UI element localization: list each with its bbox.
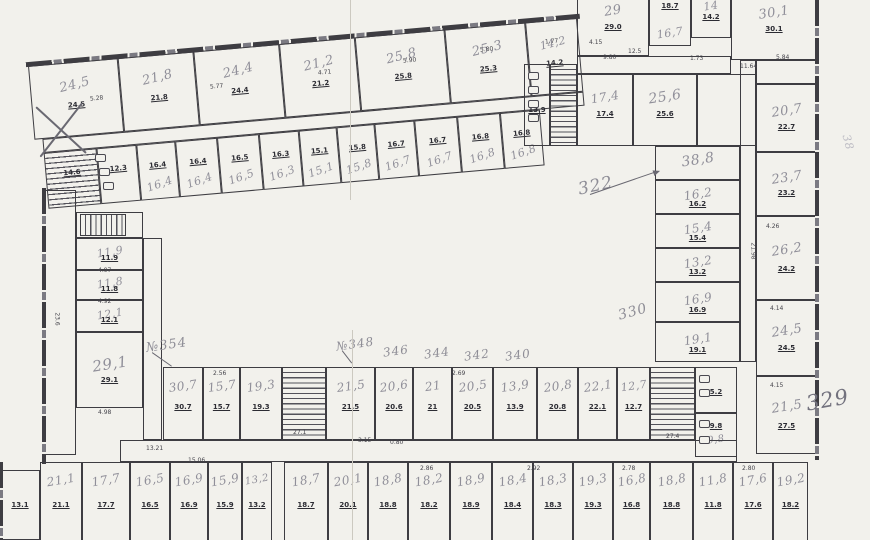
room: 13.1 [0, 470, 40, 540]
room-29.1: 29,129.1 [76, 332, 143, 408]
room-area-handwritten: 30,7 [168, 378, 198, 396]
room-11.8: 11,811.8 [76, 270, 143, 300]
dimension-number: 15.06 [188, 458, 205, 464]
room-area-printed: 17.4 [596, 110, 613, 118]
room-area-handwritten: 25,6 [647, 87, 682, 108]
room-21.2: 21,221.2 [279, 37, 361, 117]
dimension-number: 5.77 [210, 83, 224, 90]
room [756, 60, 817, 84]
room-area-printed: 11.8 [704, 501, 721, 509]
dimension-number: 2.80 [742, 466, 755, 472]
room-30.7: 30,730.7 [163, 367, 203, 440]
dimension-number: 4.98 [98, 410, 111, 416]
dimension-number: 2.56 [213, 371, 226, 377]
pencil-note-38: 38 [840, 133, 857, 152]
room-22.1: 22,122.1 [578, 367, 617, 440]
room-16.7: 16,716.7 [374, 121, 419, 180]
room-area-printed: 12.1 [101, 316, 118, 324]
room-area-handwritten: 16,5 [227, 166, 256, 187]
room-area-handwritten: 16,9 [682, 290, 713, 308]
room-18.8: 18,818.8 [368, 462, 408, 540]
room-area-handwritten: 24,5 [58, 74, 92, 96]
room-area-printed: 20.8 [549, 403, 566, 411]
room-area-handwritten: 20,8 [542, 378, 572, 396]
room-13.9: 13,913.9 [493, 367, 537, 440]
room-20.5: 20,520.5 [452, 367, 493, 440]
room-19.1: 19,119.1 [655, 322, 740, 362]
room-area-printed: 24.4 [231, 86, 249, 95]
room-area-printed: 16.2 [689, 200, 706, 208]
dimension-number: 2.92 [527, 466, 540, 472]
room-21.8: 21,821.8 [118, 52, 200, 132]
room-30.1: 30,130.1 [731, 0, 817, 60]
room-18.4: 18,418.4 [492, 462, 533, 540]
room-16.9: 16,916.9 [655, 282, 740, 322]
room-area-printed: 25.3 [480, 64, 498, 73]
dimension-number: 9.80 [603, 55, 616, 61]
room-13.2: 13,213.2 [655, 248, 740, 282]
room-area-printed: 18.4 [504, 501, 521, 509]
room-area-handwritten: 29 [603, 3, 623, 21]
room-24.5: 24,524.5 [756, 300, 817, 376]
room-area-printed: 18.8 [663, 501, 680, 509]
dimension-number: 1.73 [690, 56, 703, 62]
room-16.5: 16,516.5 [130, 462, 170, 540]
room-area-printed: 13.2 [689, 268, 706, 276]
room-area-printed: 13.9 [506, 403, 523, 411]
room-area-printed: 18.2 [782, 501, 799, 509]
room-area-handwritten: 18,3 [538, 470, 569, 489]
room-area-printed: 12.3 [109, 163, 127, 172]
room-area-printed: 14.2 [702, 13, 719, 21]
dimension-number: 5.84 [776, 55, 789, 61]
room-area-printed: 21 [428, 403, 438, 411]
room-area-printed: 20.5 [464, 403, 481, 411]
room-20.6: 20,620.6 [375, 367, 413, 440]
room [120, 440, 737, 462]
room-area-printed: 15.9 [216, 501, 233, 509]
room-area-handwritten: 13,9 [500, 378, 530, 396]
dimension-number: 4.15 [770, 383, 783, 389]
room-16.3: 16,316.3 [259, 131, 304, 190]
room-area-handwritten: 21 [423, 378, 441, 394]
room-area-printed: 16.5 [231, 153, 249, 162]
room-area-handwritten: 29,1 [91, 352, 129, 375]
room-area-printed: 19.1 [689, 346, 706, 354]
room-area-handwritten: 12,7 [619, 378, 647, 395]
room-area-handwritten: 19,1 [682, 330, 713, 348]
room-area-handwritten: 18,8 [656, 470, 687, 489]
dimension-number: 5.80 [480, 46, 494, 53]
room-11.9: 11,911.9 [76, 238, 143, 270]
floor-plan-scan: 24,524.521,821.824,424.421,221.225,825.8… [0, 0, 870, 540]
room-area-handwritten: 16,5 [135, 470, 166, 489]
room-area-printed: 17.7 [97, 501, 114, 509]
room-area-printed: 22.1 [589, 403, 606, 411]
room-16.4: 16,416.4 [136, 141, 180, 200]
dimension-number: 2.78 [622, 466, 635, 472]
dimension-number: 11.64 [740, 64, 757, 70]
room-16.5: 16,516.5 [217, 134, 264, 193]
wc-fixture-icon [528, 100, 539, 108]
room-area-printed: 15.7 [213, 403, 230, 411]
room-area-handwritten: 24,5 [770, 321, 803, 341]
room-17.7: 17,717.7 [82, 462, 130, 540]
room-area-printed: 21.1 [52, 501, 69, 509]
room-area-printed: 18.7 [661, 2, 678, 10]
room-14: 1414.2 [691, 0, 731, 38]
room-area-printed: 20.1 [339, 501, 356, 509]
room-area-printed: 16.9 [689, 306, 706, 314]
room-area-handwritten: 21,1 [46, 470, 77, 489]
room-area-handwritten: 16,7 [425, 149, 454, 170]
room-area-handwritten: 16,8 [616, 470, 647, 489]
room-area-printed: 22.7 [778, 123, 795, 131]
room-area-printed: 15.8 [348, 142, 366, 151]
room-18.9: 18,918.9 [450, 462, 492, 540]
room-area-printed: 18.8 [379, 501, 396, 509]
room-area-printed: 24.2 [778, 265, 795, 273]
room-area-printed: 21.8 [150, 93, 168, 102]
pencil-note-330: 330 [616, 300, 649, 323]
room-12.7: 12,712.7 [617, 367, 650, 440]
room-area-printed: 16.3 [272, 149, 290, 158]
wc-fixture-icon [528, 72, 539, 80]
room-area-printed: 30.1 [765, 25, 782, 33]
room-area-handwritten: 16,7 [383, 153, 412, 174]
room-area-printed: 25.8 [394, 71, 412, 80]
room-area-printed: 16.4 [149, 160, 167, 169]
wc-fixture-icon [95, 154, 106, 162]
room-area-handwritten: 21,5 [770, 398, 803, 418]
room-area-printed: 18.7 [297, 501, 314, 509]
room-21.5: 21,521.5 [326, 367, 375, 440]
room-area-handwritten: 16,4 [145, 174, 174, 195]
room-25.8: 25,825.8 [355, 30, 451, 112]
outer-wall [42, 188, 46, 464]
room-13.2: 13,213.2 [242, 462, 272, 540]
room-area-printed: 16.4 [189, 156, 207, 165]
room-18.8: 18,818.8 [650, 462, 693, 540]
room-area-printed: 23.2 [778, 189, 795, 197]
room-area-printed: 18.9 [462, 501, 479, 509]
room-16.7: 16,718.7 [649, 0, 691, 46]
room-area-printed: 29.0 [604, 23, 621, 31]
dimension-number: 27.4 [666, 434, 679, 440]
room-area-printed: 18.3 [544, 501, 561, 509]
room-area-handwritten: 20,7 [770, 102, 803, 122]
room [740, 60, 756, 362]
room-16.4: 16,416.4 [175, 138, 222, 197]
room-area-handwritten: 15,8 [344, 156, 373, 177]
room-area-handwritten: 16,4 [185, 170, 214, 191]
room-area-handwritten: 19,3 [246, 378, 276, 396]
room-area-handwritten: 18,2 [414, 470, 445, 489]
room-18.7: 18,718.7 [284, 462, 328, 540]
room-18.3: 18,318.3 [533, 462, 573, 540]
room-area-printed: 24.5 [778, 344, 795, 352]
room-area-printed: 19.3 [584, 501, 601, 509]
room-16.8: 16,816.8 [613, 462, 650, 540]
room-area-printed: 16.7 [429, 135, 447, 144]
dimension-number: 4.14 [770, 306, 783, 312]
room-area-handwritten: 14 [703, 0, 720, 13]
room-17.4: 17,417.4 [577, 74, 633, 146]
room-15.7: 15,715.7 [203, 367, 240, 440]
room-area-printed: 29.1 [101, 376, 118, 384]
room-area-handwritten: 15,9 [210, 470, 241, 489]
room-area-printed: 14.6 [63, 167, 81, 176]
room-area-handwritten: 19,3 [578, 470, 609, 489]
dimension-number: 4.15 [589, 40, 602, 46]
room-area-printed: 15.1 [311, 146, 329, 155]
wc-fixture-icon [99, 168, 110, 176]
room-area-printed: 5.2 [710, 388, 722, 396]
room-16.7: 16,716.7 [414, 117, 462, 177]
room-area-printed: 21.2 [312, 79, 330, 88]
room-25.3: 25,325.3 [444, 23, 531, 104]
room-area-printed: 13.1 [11, 501, 28, 509]
room-11.8: 11,811.8 [693, 462, 733, 540]
room-area-handwritten: 21,5 [335, 378, 365, 396]
room-area-printed: 11.9 [101, 254, 118, 262]
room-area-handwritten: 18,4 [497, 470, 528, 489]
room-area-handwritten: 30,1 [758, 3, 791, 23]
dimension-number: 1.77 [545, 38, 559, 45]
room-21.1: 21,121.1 [40, 462, 82, 540]
wc-fixture-icon [699, 375, 710, 383]
room-20.8: 20,820.8 [537, 367, 578, 440]
room-19.3: 19,319.3 [573, 462, 613, 540]
pencil-note-342: 342 [463, 346, 491, 363]
room-area-handwritten: 24,4 [221, 59, 255, 81]
dimension-number: 4.92 [98, 299, 111, 305]
stairwell [550, 64, 577, 146]
room-16.2: 16,216.2 [655, 180, 740, 214]
room-20.1: 20,120.1 [328, 462, 368, 540]
dimension-number: 0.80 [390, 440, 403, 446]
room-area-printed: 27.5 [778, 422, 795, 430]
room-area-handwritten: 16,8 [467, 145, 496, 166]
dimension-number: 4.71 [318, 69, 332, 76]
room-23.7: 23,723.2 [756, 152, 817, 216]
room-area-printed: 16.9 [180, 501, 197, 509]
room-area-handwritten: 17,4 [590, 88, 621, 106]
wc-fixture-icon [528, 114, 539, 122]
room-area-handwritten: 38,8 [680, 150, 715, 171]
dimension-number: 5.28 [90, 95, 104, 102]
dimension-number: 2.86 [420, 466, 433, 472]
wc-fixture-icon [528, 86, 539, 94]
room-area-printed: 30.7 [174, 403, 191, 411]
room-area-printed: 13.2 [248, 501, 265, 509]
room-area-handwritten: 16,7 [656, 25, 684, 42]
room-area-printed: 20.6 [385, 403, 402, 411]
paper-fold-seam [350, 0, 351, 200]
room-area-handwritten: 16,9 [174, 470, 205, 489]
dimension-number: 4.26 [766, 224, 779, 230]
room-area-handwritten: 17,6 [738, 470, 769, 489]
pencil-note-346: 346 [382, 342, 410, 359]
room-area-printed: 17.6 [744, 501, 761, 509]
room-19.2: 19,218.2 [773, 462, 808, 540]
room-38.8: 38,8 [655, 146, 740, 180]
pencil-stroke [342, 350, 353, 364]
room-area-handwritten: 21,8 [141, 66, 175, 88]
room-area-handwritten: 16,3 [268, 163, 297, 184]
dimension-number: 4.97 [98, 268, 111, 274]
room-15.1: 15,115.1 [299, 127, 342, 186]
room-area-handwritten: 18,7 [291, 470, 322, 489]
dimension-number: 3.15 [358, 438, 371, 444]
room-area-printed: 11.8 [101, 285, 118, 293]
room-16.8: 16,816.8 [457, 113, 505, 173]
dimension-number: 13.21 [146, 446, 163, 452]
paper-fold-seam [352, 330, 353, 540]
room-15.8: 15,815.8 [337, 124, 380, 183]
room-area-handwritten: 18,8 [373, 470, 404, 489]
room-18.2: 18,218.2 [408, 462, 450, 540]
room-16.9: 16,916.9 [170, 462, 208, 540]
room-area-printed: 18.2 [420, 501, 437, 509]
room-area-handwritten: 15,1 [307, 159, 336, 180]
stairwell [650, 367, 695, 440]
room-area-handwritten: 20,5 [457, 378, 487, 396]
wc-fixture-icon [699, 389, 710, 397]
room-area-printed: 16.8 [623, 501, 640, 509]
dimension-number: 23.6 [54, 312, 60, 325]
room-15.9: 15,915.9 [208, 462, 242, 540]
dimension-number: 12.5 [628, 49, 641, 55]
outer-wall [0, 462, 3, 540]
room-area-handwritten: 20,1 [333, 470, 364, 489]
room-area-printed: 16.7 [387, 139, 405, 148]
dimension-number: 2.69 [452, 371, 465, 377]
room-area-handwritten: 26,2 [770, 240, 803, 260]
pencil-note-340: 340 [504, 346, 532, 363]
room-17.6: 17,617.6 [733, 462, 773, 540]
wc-fixture-icon [699, 436, 710, 444]
room-area-handwritten: 15,7 [206, 378, 236, 396]
room-15.4: 15,415.4 [655, 214, 740, 248]
room-area-handwritten: 17,7 [91, 470, 122, 489]
room-21: 2121 [413, 367, 452, 440]
wc-fixture-icon [699, 420, 710, 428]
room-24.4: 24,424.4 [193, 44, 285, 125]
room-25.6: 25,625.6 [633, 74, 697, 146]
dimension-number: 5.90 [403, 57, 417, 64]
room-area-printed: 21.5 [342, 403, 359, 411]
stairwell [80, 214, 126, 236]
room-area-handwritten: 22,1 [582, 378, 612, 396]
room-20.7: 20,722.7 [756, 84, 817, 152]
room-area-printed: 9.8 [710, 422, 722, 430]
pencil-note-344: 344 [423, 344, 451, 361]
dimension-number: 21.98 [750, 242, 756, 259]
room-24.5: 24,524.5 [28, 58, 124, 140]
room-area-printed: 16.5 [141, 501, 158, 509]
room-area-handwritten: 11,8 [698, 470, 729, 489]
room-area-printed: 19.3 [252, 403, 269, 411]
room-area-handwritten: 18,9 [456, 470, 487, 489]
room-19.3: 19,319.3 [240, 367, 282, 440]
room-area-handwritten: 13,2 [244, 472, 270, 487]
room-area-handwritten: 20,6 [379, 378, 409, 396]
dimension-number: 27.1 [293, 430, 306, 436]
room-area-printed: 16.8 [471, 132, 489, 141]
room [577, 56, 731, 74]
room-area-printed: 25.6 [656, 110, 673, 118]
room-area-printed: 12.7 [625, 403, 642, 411]
wc-fixture-icon [103, 182, 114, 190]
room-area-handwritten: 23,7 [770, 168, 803, 188]
room-area-printed: 15.4 [689, 234, 706, 242]
room-area-handwritten: 19,2 [775, 470, 806, 489]
